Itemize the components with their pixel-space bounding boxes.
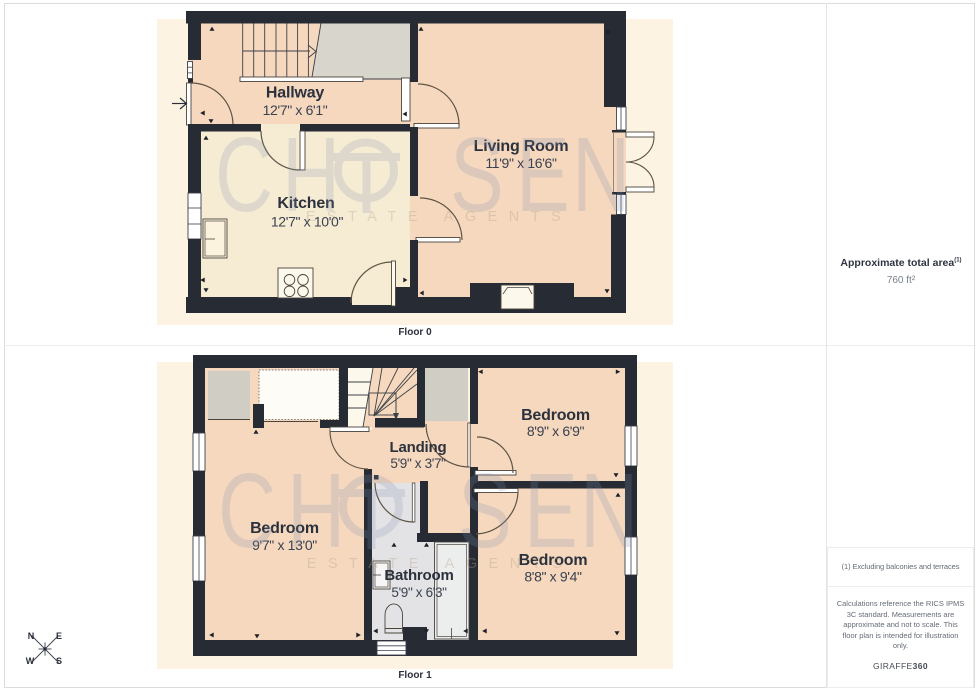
svg-text:Bedroom: Bedroom	[521, 407, 590, 424]
svg-text:E: E	[524, 451, 578, 569]
svg-text:Landing: Landing	[390, 439, 447, 456]
svg-text:H: H	[287, 451, 345, 569]
svg-text:N: N	[28, 631, 35, 641]
svg-text:5'9" x 6'3": 5'9" x 6'3"	[391, 585, 447, 600]
svg-text:E: E	[56, 631, 62, 641]
svg-text:ESTATE AGENTS: ESTATE AGENTS	[306, 209, 573, 225]
svg-text:N: N	[572, 115, 630, 233]
svg-text:5'9" x 3'7": 5'9" x 3'7"	[390, 456, 446, 471]
svg-text:8'9" x 6'9": 8'9" x 6'9"	[527, 423, 585, 439]
svg-text:N: N	[580, 451, 638, 569]
svg-text:Hallway: Hallway	[266, 85, 324, 102]
svg-text:S: S	[56, 656, 62, 666]
svg-text:C: C	[218, 451, 276, 569]
svg-text:ESTATE AGENTS: ESTATE AGENTS	[307, 556, 574, 572]
svg-text:W: W	[26, 656, 35, 666]
svg-text:C: C	[215, 115, 273, 233]
svg-text:S: S	[458, 451, 512, 569]
